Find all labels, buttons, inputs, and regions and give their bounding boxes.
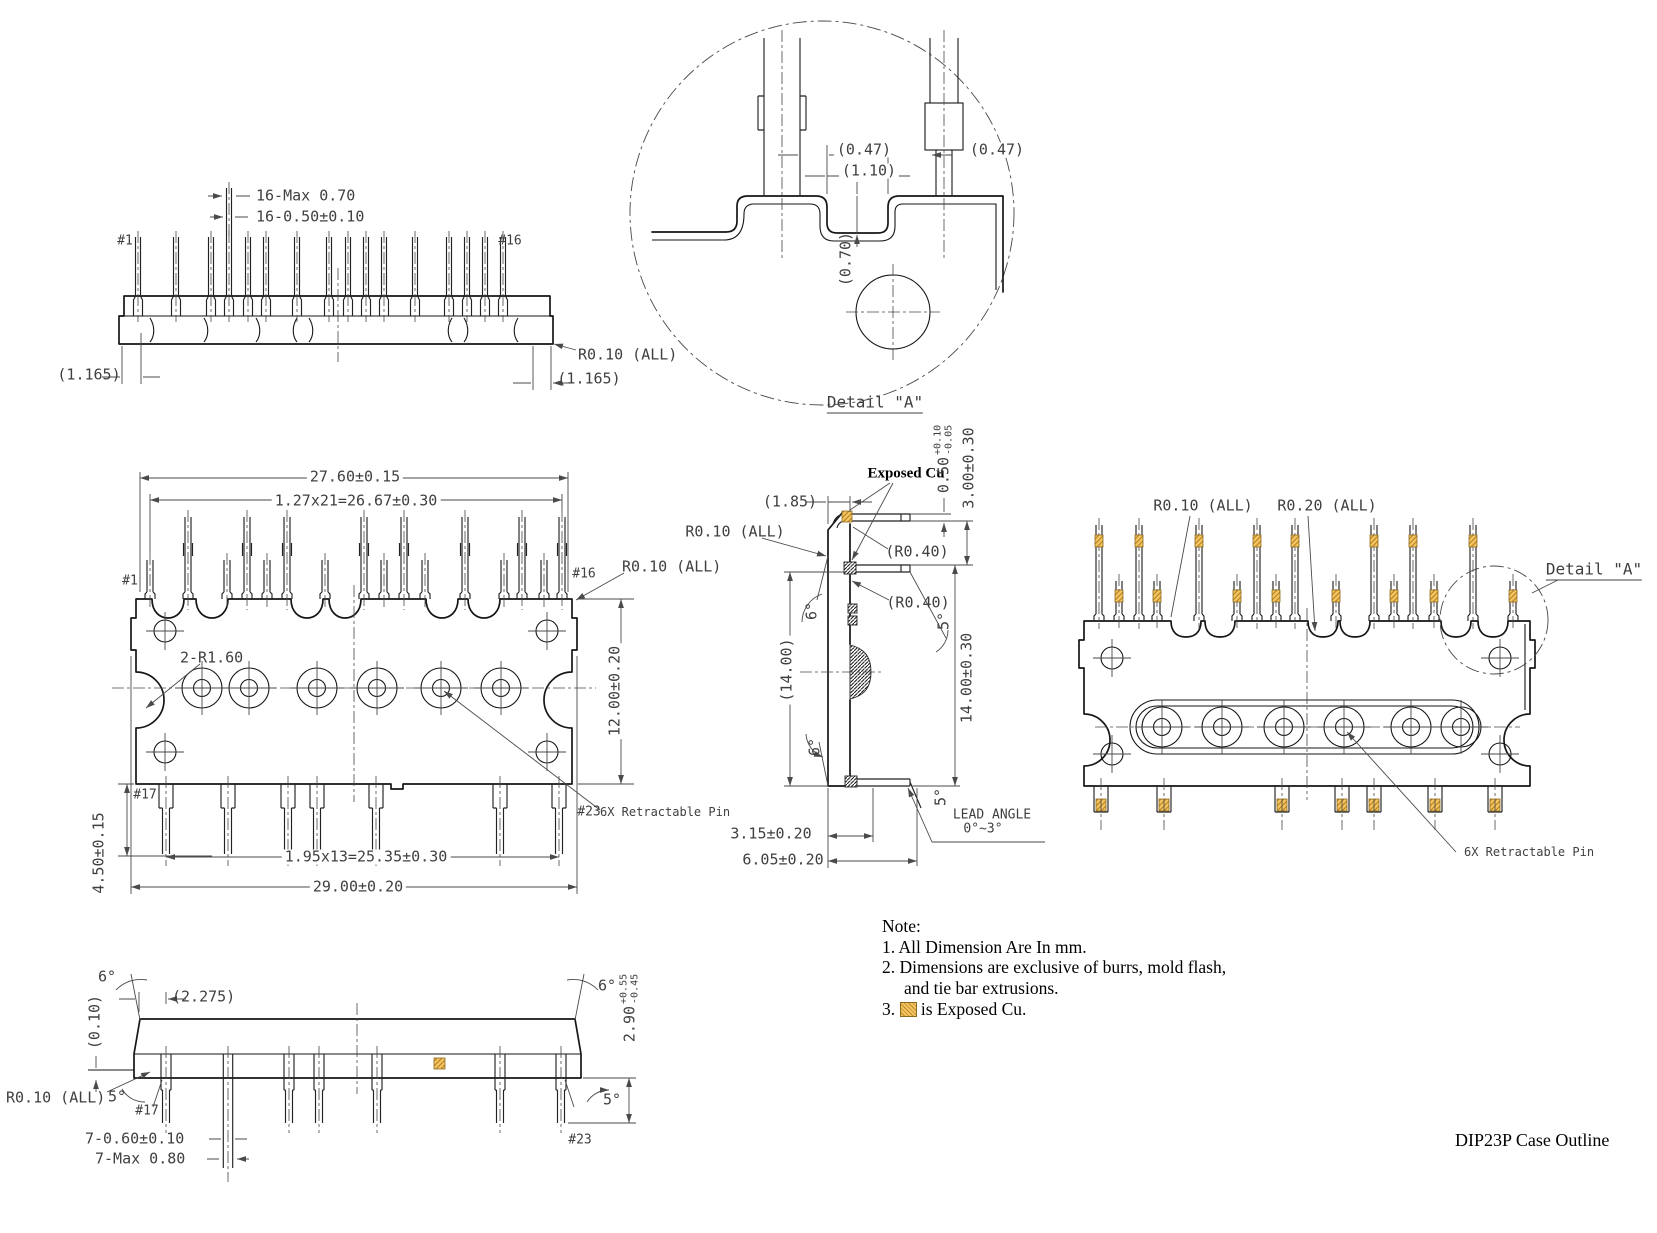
bottom-view-pins [161,1046,566,1182]
dim-height: 14.00±0.30 [960,633,975,723]
pin-17-label: #17 [133,789,156,802]
dim-detail-right: (0.47) [967,143,1027,158]
dim-pitch-top: 1.27x21=26.67±0.30 [272,494,441,509]
notes-block: Note: 1. All Dimension Are In mm. 2. Dim… [882,916,1226,1019]
dim-pin-width-max: 7-Max 0.80 [95,1152,185,1167]
angle-pin-right: 5° [603,1093,621,1108]
exposed-cu-swatch [900,1002,917,1017]
pin-1-label: #1 [122,575,138,588]
angle-top-back: 5° [937,612,952,630]
note-3-text: is Exposed Cu. [921,999,1027,1019]
pin-23-label: #23 [577,806,600,819]
note-2-cont: and tie bar extrusions. [882,978,1226,999]
lead-angle-label: LEAD ANGLE [953,809,1031,822]
detail-a-linework [630,21,1014,405]
dim-base: 2.90 [623,1006,638,1042]
retractable-pin-callout: 6X Retractable Pin [1464,846,1594,858]
dim-tol-minus: -0.05 [944,425,955,455]
angle-end-left: 6° [98,970,116,985]
note-1: 1. All Dimension Are In mm. [882,937,1226,958]
detail-a-reference: Detail "A" [1546,562,1642,581]
dim-standoff-1: 3.15±0.20 [730,827,811,842]
pin-17-label: #17 [135,1105,158,1118]
dim-pin-offset: (2.275) [172,990,235,1005]
dim-detail-pitch: (1.10) [839,164,899,179]
retractable-pin-callout: 6X Retractable Pin [600,806,730,818]
dim-tol-minus: -0.45 [630,974,641,1004]
exposed-cu-pad [844,562,856,574]
drawing-title: DIP23P Case Outline [1455,1130,1657,1151]
dim-cu-thickness: 0.50 +0.10-0.05 [934,425,955,493]
lead-angle-range: 0°~3° [963,823,1002,836]
radius-callout: R0.10 (ALL) [622,560,721,575]
dim-tol-plus: +0.55 [620,974,631,1004]
dim-base: 0.50 [937,457,952,493]
pin-23-label: #23 [568,1134,591,1147]
dim-body-height: 12.00±0.20 [608,643,623,739]
detail-a-title: Detail "A" [827,395,923,414]
exposed-cu-pad [848,616,857,625]
radius-bend-bottom: (R0.40) [886,596,949,611]
angle-pin-left: 5° [108,1090,126,1105]
back-view-linework [1079,516,1558,852]
dim-detail-left: (0.47) [834,143,894,158]
dim-offset-right: (1.165) [557,372,620,387]
note-3-number: 3. [882,999,895,1019]
dim-offset-left: (1.165) [57,368,120,383]
drawing-sheet: 16-Max 0.70 16-0.50±0.10 #1 #16 R0.10 (A… [0,0,1657,1233]
drawing-canvas [0,0,1657,1233]
angle-top-front: 6° [805,602,820,620]
dim-detail-depth: (0.70) [839,232,854,286]
dim-pin-length: 4.50±0.15 [92,809,107,896]
radius-bend-top: (R0.40) [885,545,948,560]
front-view-holes [146,612,566,771]
angle-bottom-front: 6° [808,738,823,756]
pin-16-label: #16 [498,235,521,248]
front-view-top-pins [145,510,567,610]
detail-a-boundary-circle [630,21,1014,405]
exposed-cu-pad [845,776,857,787]
radius-r020-callout: R0.20 (ALL) [1277,499,1376,514]
dim-pin-width: 7-0.60±0.10 [85,1132,184,1147]
dim-standoff-2: 6.05±0.20 [742,853,823,868]
angle-bottom-back: 5° [934,788,949,806]
pin-16-label: #16 [572,568,595,581]
dim-pitch-bottom: 1.95x13=25.35±0.30 [282,850,451,865]
dim-standoff: (0.10) [88,995,103,1049]
note-2: 2. Dimensions are exclusive of burrs, mo… [882,957,1226,978]
pin-1-label: #1 [117,235,133,248]
radius-callout: R0.10 (ALL) [578,348,677,363]
notes-heading: Note: [882,916,1226,937]
radius-callout: R0.10 (ALL) [6,1091,105,1106]
exposed-cu-pad [848,604,857,613]
exposed-cu-pad [434,1058,445,1069]
dim-total-width: 29.00±0.20 [310,880,406,895]
dim-body-depth: (1.85) [763,495,817,510]
radius-callout: R0.10 (ALL) [685,525,784,540]
angle-end-right: 6° [598,979,616,994]
dim-pin-width-max: 16-Max 0.70 [256,189,355,204]
dim-protrusion: 2.90 +0.55-0.45 [620,974,641,1042]
dim-tol-plus: +0.10 [934,425,945,455]
radius-r010-callout: R0.10 (ALL) [1153,499,1252,514]
dim-body-width: 27.60±0.15 [307,470,403,485]
dim-lead-offset: 3.00±0.30 [962,427,977,508]
note-3: 3. is Exposed Cu. [882,999,1226,1020]
dim-corner-radius: 2-R1.60 [180,651,243,666]
dim-height-ref: (14.00) [780,635,795,704]
front-view-linework [112,472,634,894]
exposed-cu-pad [842,511,852,522]
dim-pin-width: 16-0.50±0.10 [256,210,364,225]
back-view-top-pins [1094,518,1518,631]
